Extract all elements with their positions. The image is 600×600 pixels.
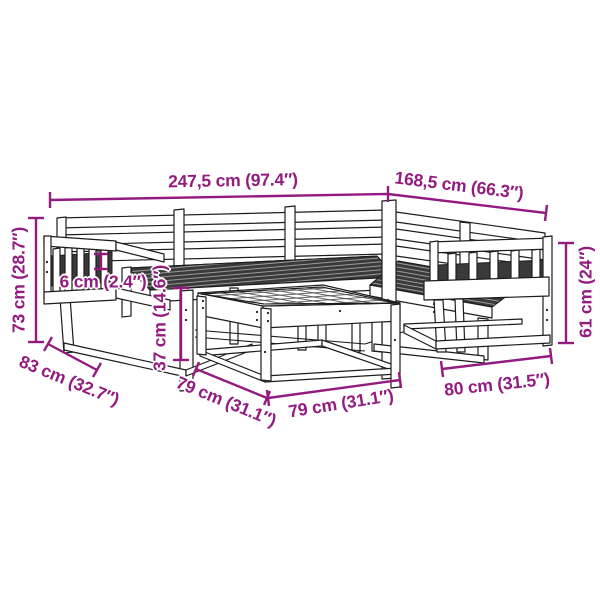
- dim-armrest-thickness-label: 6 cm (2.4″): [60, 273, 147, 291]
- dimension-diagram: 247,5 cm (97.4″) 168,5 cm (66.3″) 73 cm …: [0, 0, 600, 600]
- furniture-line-art: [0, 0, 600, 600]
- dim-table-height-label: 37 cm (14.6″): [151, 265, 169, 371]
- dim-total-width-label: 247,5 cm (97.4″): [168, 171, 298, 191]
- dim-right-arm-height-label: 61 cm (24″): [577, 246, 595, 338]
- dim-back-height-label: 73 cm (28.7″): [10, 227, 28, 333]
